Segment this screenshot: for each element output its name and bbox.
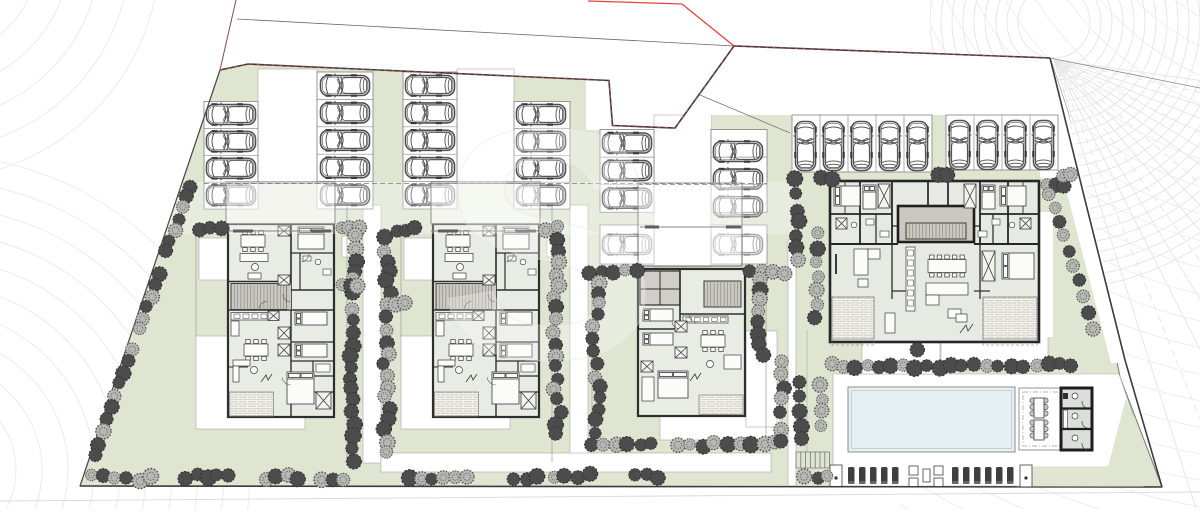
svg-text:S: S — [438, 59, 658, 428]
